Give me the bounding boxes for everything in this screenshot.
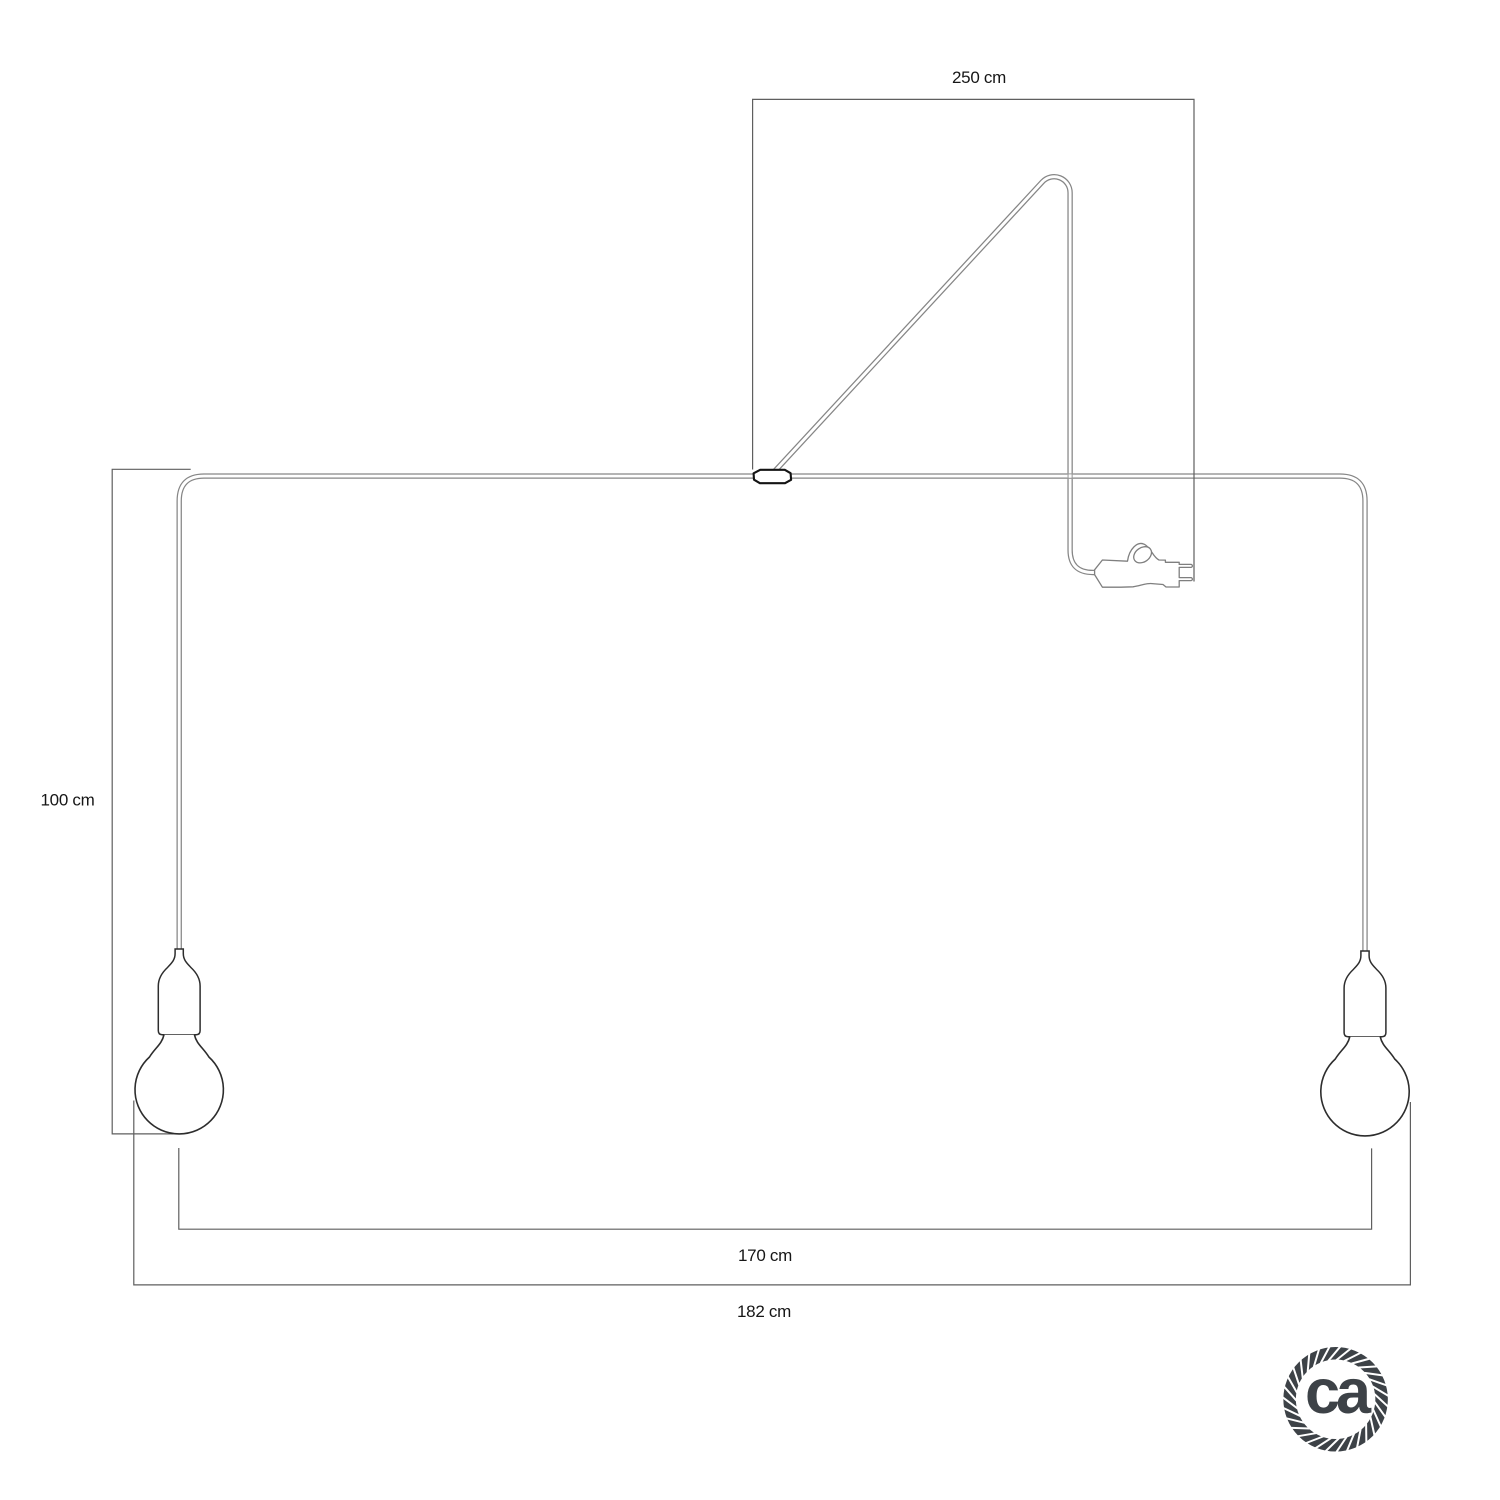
svg-text:ca: ca [1305,1357,1372,1427]
svg-text:250 cm: 250 cm [952,68,1006,87]
svg-text:100 cm: 100 cm [41,791,95,810]
svg-text:170 cm: 170 cm [738,1246,792,1265]
svg-text:182 cm: 182 cm [737,1302,791,1321]
